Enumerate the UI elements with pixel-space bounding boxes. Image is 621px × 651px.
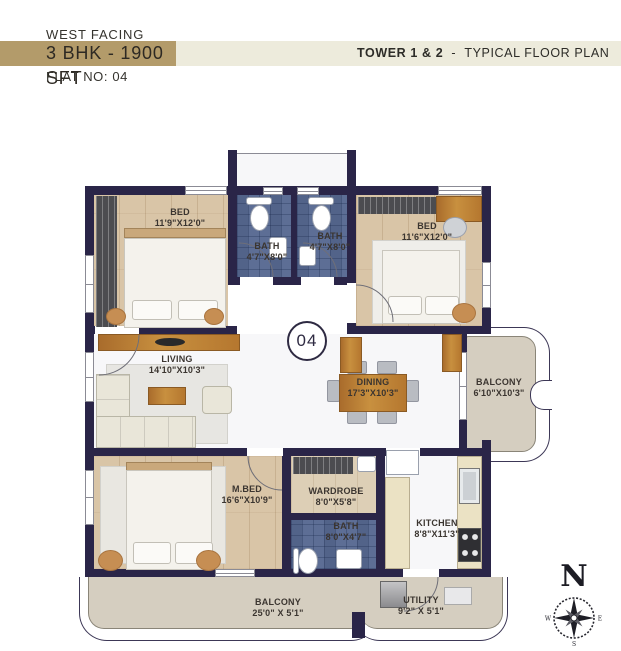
room-name: BATH: [317, 231, 342, 241]
bed1-pouf: [106, 308, 126, 325]
door-gap-bath2: [301, 277, 334, 285]
room-label-dining: DINING17'3"X10'3": [347, 377, 398, 399]
mbed-pillow: [133, 542, 171, 564]
bath2-toilet: [312, 205, 331, 231]
floor-plan: BED11'9"X12'0" BATH4'7"X8'0" BATH4'7"X8'…: [0, 0, 621, 651]
wall-wardrobe-left: [282, 456, 291, 577]
fridge: [386, 450, 419, 475]
door-gap-bath1: [240, 277, 273, 285]
room-dims: 4'7"X8'0": [310, 242, 351, 252]
room-label-bath2: BATH4'7"X8'0": [310, 231, 351, 253]
dining-chair: [377, 411, 397, 424]
kitchen-counter-left: [385, 477, 410, 569]
balcony-right-notch: [530, 380, 552, 410]
room-dims: 14'10"X10'3": [149, 365, 205, 375]
bed1-pouf: [204, 308, 224, 325]
stove: [458, 528, 481, 562]
room-label-bath3: BATH8'0"X4'7": [326, 521, 367, 543]
dining-chair: [377, 361, 397, 374]
compass-north-label: N: [560, 559, 587, 594]
unit-number-badge: 04: [287, 321, 327, 361]
room-label-mbed: M.BED16'6"X10'9": [221, 484, 272, 506]
bath2-toilet-tank: [308, 197, 334, 205]
room-dims: 8'0"X5'8": [316, 497, 357, 507]
bed2-pillow: [388, 296, 422, 315]
utility-heater: [444, 587, 472, 605]
room-name: UTILITY: [403, 595, 438, 605]
bed1-headboard: [124, 228, 226, 238]
window-bed2-top: [438, 186, 482, 195]
wall-kitchen-right: [482, 440, 491, 577]
wall-lobby-left: [228, 150, 237, 194]
wall-bath-divider: [291, 194, 297, 281]
room-label-utility: UTILITY9'2" X 5'1": [398, 595, 444, 617]
room-label-balcony-right: BALCONY6'10"X10'3": [473, 377, 524, 399]
bed2-pouf: [452, 303, 476, 323]
room-label-bath1: BATH4'7"X8'0": [247, 241, 288, 263]
window-bed2-right: [482, 262, 491, 308]
room-dims: 4'7"X8'0": [247, 252, 288, 262]
door-gap-utility: [403, 569, 439, 577]
compass-rose-icon: N W E S: [541, 556, 607, 648]
wall-bath-left: [228, 186, 237, 285]
sofa-bottom: [96, 416, 196, 448]
room-name: BALCONY: [476, 377, 522, 387]
room-name: BALCONY: [255, 597, 301, 607]
room-name: BED: [170, 207, 190, 217]
room-name: BATH: [333, 521, 358, 531]
room-label-living: LIVING14'10"X10'3": [149, 354, 205, 376]
bath1-toilet: [250, 205, 269, 231]
compass-south-label: S: [572, 641, 576, 648]
window-bath1-top: [263, 187, 283, 195]
window-bed1-top: [185, 186, 227, 195]
room-name: BATH: [254, 241, 279, 251]
room-dims: 6'10"X10'3": [473, 388, 524, 398]
window-mbed-balcony: [215, 569, 255, 577]
wall-utility-stub: [352, 612, 365, 638]
mbed-pouf: [98, 550, 123, 571]
wall-mid: [85, 448, 491, 456]
room-label-wardrobe: WARDROBE8'0"X5'8": [308, 486, 363, 508]
room-label-balcony-bottom: BALCONY25'0" X 5'1": [252, 597, 303, 619]
room-name: KITCHEN: [416, 518, 457, 528]
dining-side-cabinet: [442, 334, 462, 372]
wall-bed2-bottom: [347, 326, 491, 334]
window-mbed-left: [85, 470, 94, 525]
wall-top: [85, 186, 491, 195]
kitchen-sink: [459, 468, 480, 504]
window-living-left: [85, 352, 94, 402]
door-gap-mbed: [247, 448, 283, 456]
crockery-cabinet: [340, 337, 362, 373]
wall-right-upper: [482, 186, 491, 334]
room-label-kitchen: KITCHEN8'8"X11'3": [414, 518, 459, 540]
bath3-toilet: [298, 548, 318, 574]
room-name: BED: [417, 221, 437, 231]
compass-east-label: E: [598, 616, 602, 623]
balcony-bottom-floor: [88, 577, 370, 629]
dining-chair: [347, 411, 367, 424]
room-dims: 25'0" X 5'1": [252, 608, 303, 618]
bath3-sink: [336, 549, 362, 569]
room-dims: 9'2" X 5'1": [398, 606, 444, 616]
wall-wardrobe-bath: [291, 513, 376, 520]
room-dims: 16'6"X10'9": [221, 495, 272, 505]
mbed-pouf: [196, 550, 221, 571]
room-dims: 17'3"X10'3": [347, 388, 398, 398]
room-name: WARDROBE: [308, 486, 363, 496]
bath1-toilet-tank: [246, 197, 272, 205]
room-name: M.BED: [232, 484, 262, 494]
room-name: DINING: [357, 377, 390, 387]
lobby-floor: [237, 153, 347, 187]
coffee-table: [148, 387, 186, 405]
room-dims: 11'6"X12'0": [402, 232, 453, 242]
dining-chair: [406, 380, 419, 402]
window-bed1-left: [85, 255, 94, 313]
room-label-bed1: BED11'9"X12'0": [155, 207, 206, 229]
room-label-bed2: BED11'6"X12'0": [402, 221, 453, 243]
room-dims: 11'9"X12'0": [155, 218, 206, 228]
wall-kitchen-left: [376, 448, 385, 577]
compass-west-label: W: [545, 616, 552, 623]
room-dims: 8'8"X11'3": [414, 529, 459, 539]
wardrobe-hanging-strip: [293, 457, 353, 474]
armchair: [202, 386, 232, 414]
bed1-pillow: [132, 300, 172, 320]
wardrobe-basin: [357, 456, 376, 472]
door-gap-bed2: [347, 283, 356, 323]
tv-unit-decor: [155, 338, 185, 346]
bed2-wardrobe-strip: [358, 197, 436, 214]
room-dims: 8'0"X4'7": [326, 532, 367, 542]
wall-lobby-right: [347, 150, 356, 194]
room-name: LIVING: [161, 354, 192, 364]
window-bath2-top: [297, 187, 319, 195]
